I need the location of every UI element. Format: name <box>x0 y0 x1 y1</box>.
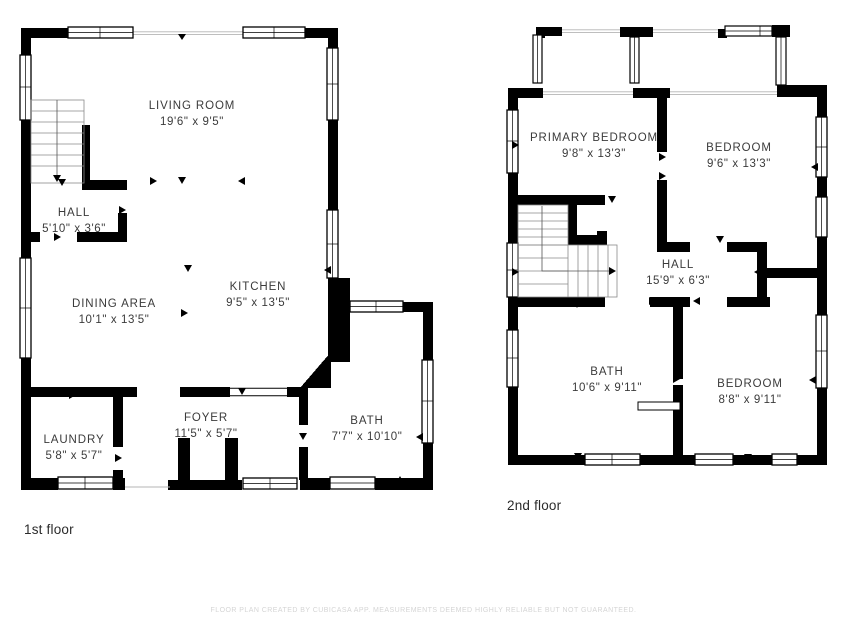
room-label-laundry: LAUNDRY 5'8" x 5'7" <box>43 434 104 462</box>
window-icon <box>58 477 113 489</box>
room-label-bath-1f: BATH 7'7" x 10'10" <box>332 415 403 443</box>
room-label-bedroom-lower: BEDROOM 8'8" x 9'11" <box>717 378 783 406</box>
floor2-label: 2nd floor <box>507 498 561 513</box>
room-label-hall-1f: HALL 5'10" x 3'6" <box>42 207 106 235</box>
window-icon <box>243 478 297 489</box>
window-icon <box>695 454 733 465</box>
window-icon <box>725 26 772 36</box>
floor-plan-canvas: LIVING ROOM 19'6" x 9'5" HALL 5'10" x 3'… <box>0 0 847 633</box>
window-icon <box>330 477 375 489</box>
floor2-thin-lines <box>543 30 777 95</box>
room-label-bath-2f: BATH 10'6" x 9'11" <box>572 366 642 394</box>
floor1-label: 1st floor <box>24 522 74 537</box>
room-label-hall-2f: HALL 15'9" x 6'3" <box>646 259 710 287</box>
window-icon <box>243 27 305 38</box>
room-label-foyer: FOYER 11'5" x 5'7" <box>174 412 237 440</box>
window-icon <box>350 301 403 312</box>
window-icon <box>585 454 640 465</box>
stairs-icon <box>31 100 84 183</box>
window-icon <box>772 454 797 465</box>
room-label-dining-area: DINING AREA 10'1" x 13'5" <box>72 298 156 326</box>
window-icon <box>20 55 31 120</box>
stairs-icon <box>518 205 617 297</box>
window-icon <box>630 37 639 83</box>
window-icon <box>776 37 786 85</box>
bathroom-shelf-icon <box>638 402 680 410</box>
window-icon <box>422 360 433 443</box>
window-icon <box>507 330 518 387</box>
room-label-living-room: LIVING ROOM 19'6" x 9'5" <box>149 100 236 128</box>
window-icon <box>68 27 133 38</box>
room-label-kitchen: KITCHEN 9'5" x 13'5" <box>226 281 290 309</box>
room-label-bedroom-upper: BEDROOM 9'6" x 13'3" <box>706 142 772 170</box>
window-icon <box>533 35 542 83</box>
window-icon <box>816 197 827 237</box>
footer-credit: FLOOR PLAN CREATED BY CUBICASA APP. MEAS… <box>0 607 847 614</box>
window-icon <box>20 258 31 358</box>
room-label-primary-bedroom: PRIMARY BEDROOM 9'8" x 13'3" <box>530 132 658 160</box>
window-icon <box>816 315 827 388</box>
window-icon <box>327 48 338 120</box>
